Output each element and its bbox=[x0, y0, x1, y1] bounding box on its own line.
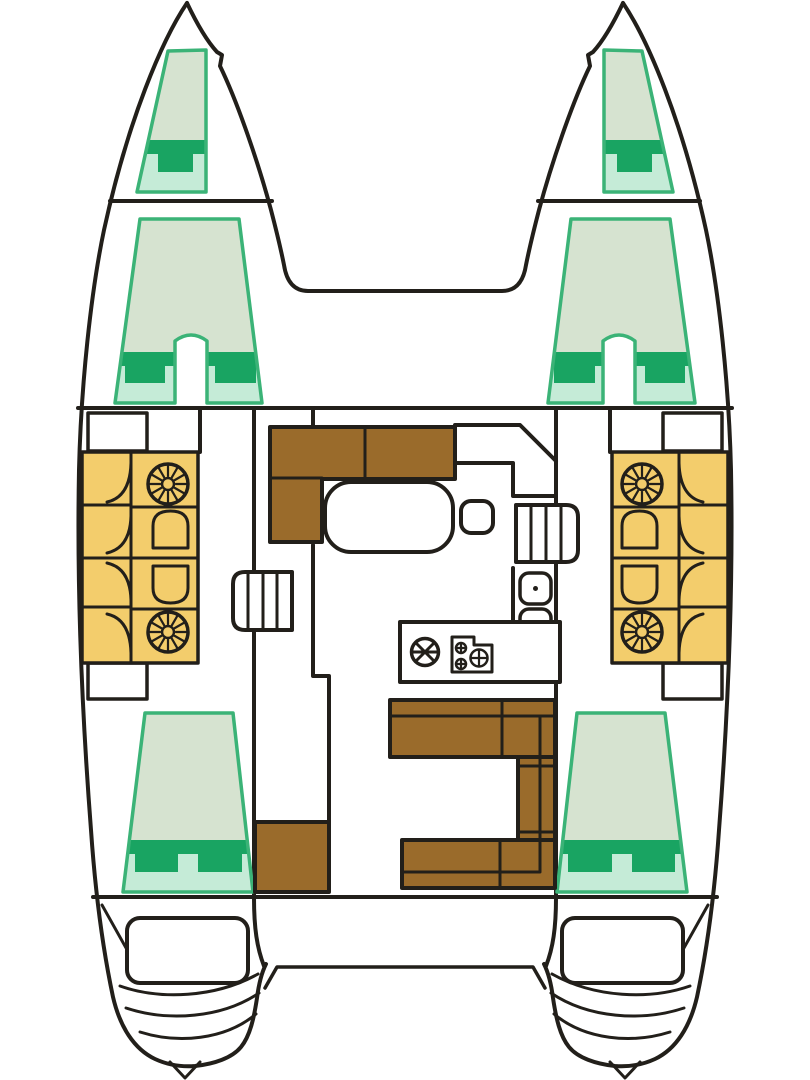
cockpit-seat-side bbox=[518, 757, 555, 840]
cockpit-seat-forward bbox=[390, 700, 555, 757]
stairs-port bbox=[233, 572, 292, 630]
catamaran-floor-plan bbox=[0, 0, 810, 1080]
salon-table bbox=[325, 482, 453, 552]
salon bbox=[233, 408, 578, 892]
hull-inner-edges-and-foredeck-front bbox=[187, 3, 623, 291]
cockpit-seating bbox=[390, 700, 555, 888]
cockpit-locker bbox=[255, 822, 329, 892]
galley-round-sink bbox=[412, 639, 439, 666]
aft-crossbeam bbox=[265, 967, 545, 988]
galley-counter-outer bbox=[455, 425, 556, 461]
floor-plan-drawing bbox=[0, 0, 810, 1080]
salon-stool bbox=[461, 501, 493, 533]
hull-port-group bbox=[79, 3, 273, 1078]
galley-counter-inner bbox=[455, 463, 556, 496]
galley-sink-upper-drain bbox=[533, 586, 538, 591]
corridor-wall bbox=[313, 545, 329, 822]
stairs-starboard bbox=[516, 505, 578, 562]
cockpit-seat-aft bbox=[402, 840, 555, 888]
